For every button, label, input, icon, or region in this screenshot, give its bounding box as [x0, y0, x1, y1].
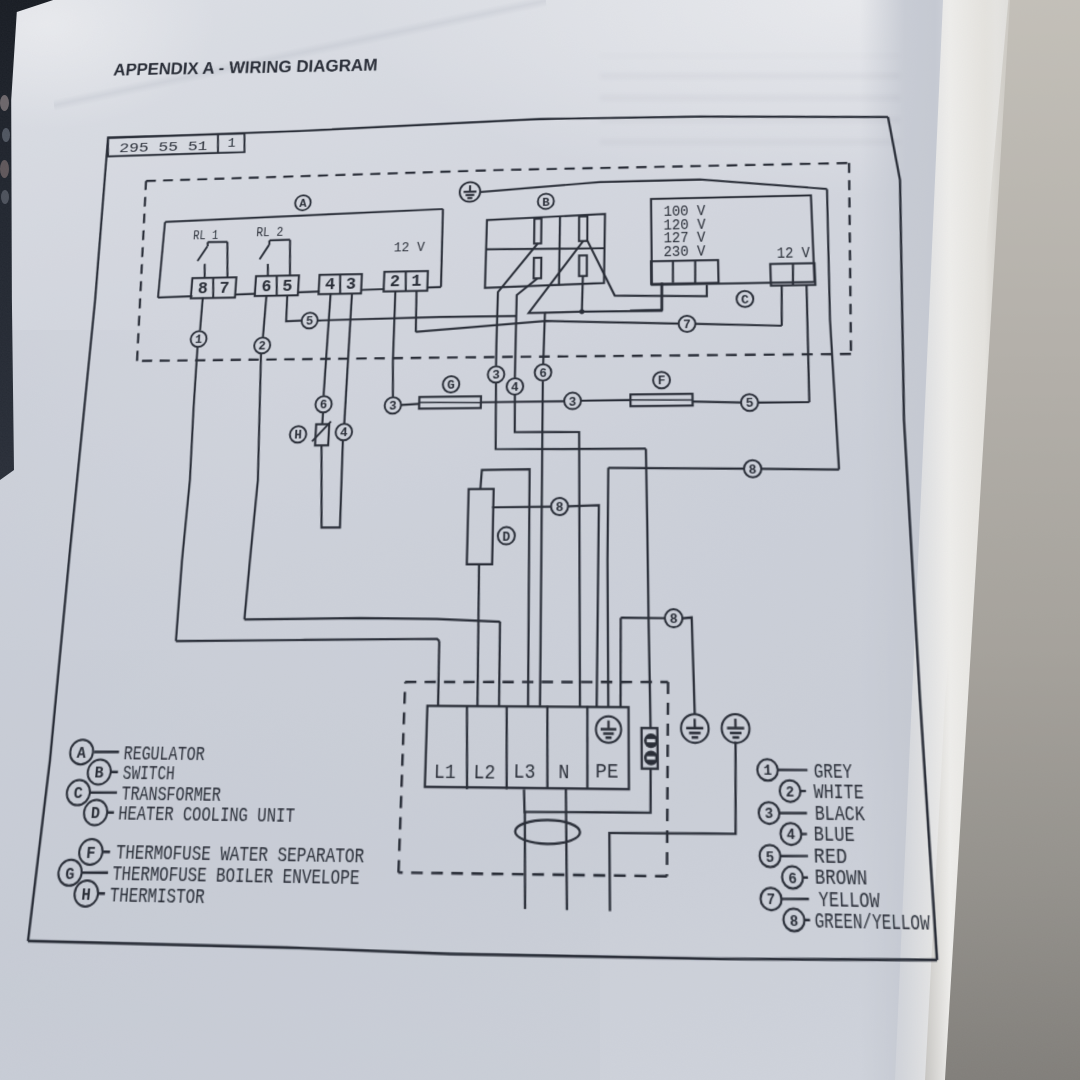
- svg-text:B: B: [542, 197, 550, 210]
- svg-text:2: 2: [786, 785, 795, 801]
- svg-text:BLACK: BLACK: [814, 805, 865, 828]
- svg-text:THERMISTOR: THERMISTOR: [109, 886, 206, 910]
- svg-text:2: 2: [389, 272, 400, 292]
- svg-text:A: A: [299, 198, 307, 211]
- svg-text:H: H: [81, 886, 92, 905]
- svg-text:3: 3: [345, 275, 356, 295]
- svg-text:3: 3: [389, 401, 397, 415]
- svg-text:6: 6: [261, 277, 272, 297]
- svg-text:SWITCH: SWITCH: [122, 765, 176, 786]
- svg-text:2: 2: [258, 341, 266, 355]
- svg-text:RL 1: RL 1: [193, 228, 219, 243]
- svg-text:12 V: 12 V: [777, 246, 811, 263]
- svg-text:6: 6: [788, 872, 797, 889]
- svg-text:7: 7: [218, 279, 229, 299]
- svg-text:7: 7: [683, 319, 691, 333]
- svg-text:3: 3: [765, 807, 774, 824]
- svg-text:6: 6: [539, 368, 547, 382]
- svg-text:TRANSFORMER: TRANSFORMER: [120, 786, 221, 808]
- svg-text:295 55 51: 295 55 51: [119, 140, 208, 157]
- svg-text:5: 5: [766, 850, 775, 867]
- svg-text:1: 1: [411, 272, 422, 292]
- svg-text:3: 3: [569, 396, 577, 410]
- svg-text:5: 5: [305, 316, 313, 329]
- svg-text:N: N: [558, 761, 569, 785]
- svg-text:APPENDIX A - WIRING DIAGRAM: APPENDIX A - WIRING DIAGRAM: [113, 55, 379, 80]
- svg-text:8: 8: [749, 464, 757, 479]
- svg-text:4: 4: [511, 382, 519, 396]
- svg-text:5: 5: [746, 398, 754, 412]
- svg-text:BLUE: BLUE: [813, 826, 855, 849]
- svg-text:G: G: [64, 865, 75, 884]
- svg-text:1: 1: [763, 764, 773, 780]
- svg-text:RL 2: RL 2: [256, 225, 284, 241]
- svg-text:3: 3: [492, 370, 500, 384]
- svg-text:1: 1: [227, 136, 236, 151]
- svg-text:6: 6: [319, 400, 327, 414]
- svg-text:L1: L1: [434, 761, 457, 785]
- svg-text:G: G: [447, 380, 455, 394]
- svg-text:4: 4: [786, 828, 796, 845]
- svg-text:H: H: [294, 430, 302, 444]
- svg-text:F: F: [658, 375, 666, 389]
- svg-text:REGULATOR: REGULATOR: [123, 745, 206, 767]
- svg-text:B: B: [94, 765, 105, 783]
- svg-text:8: 8: [197, 279, 208, 299]
- svg-text:A: A: [76, 745, 87, 763]
- svg-text:4: 4: [324, 275, 335, 295]
- svg-text:L2: L2: [473, 761, 495, 785]
- svg-text:RED: RED: [813, 848, 848, 871]
- svg-text:PE: PE: [595, 761, 618, 785]
- svg-text:BROWN: BROWN: [814, 869, 867, 892]
- svg-text:230 V: 230 V: [663, 244, 705, 261]
- svg-text:D: D: [502, 531, 511, 546]
- svg-text:D: D: [90, 805, 101, 824]
- svg-text:WHITE: WHITE: [813, 783, 864, 805]
- svg-text:C: C: [741, 294, 750, 308]
- svg-text:8: 8: [556, 502, 564, 517]
- svg-text:8: 8: [789, 914, 798, 931]
- svg-text:C: C: [73, 785, 84, 803]
- svg-text:12 V: 12 V: [393, 240, 425, 256]
- svg-text:GREY: GREY: [813, 762, 853, 784]
- svg-text:4: 4: [340, 427, 349, 441]
- svg-text:8: 8: [670, 613, 678, 628]
- svg-text:7: 7: [767, 893, 776, 910]
- svg-text:5: 5: [282, 276, 293, 296]
- svg-text:F: F: [85, 845, 96, 864]
- svg-text:GREEN/YELLOW: GREEN/YELLOW: [814, 911, 930, 936]
- svg-text:HEATER COOLING UNIT: HEATER COOLING UNIT: [117, 805, 295, 829]
- svg-text:L3: L3: [513, 761, 535, 785]
